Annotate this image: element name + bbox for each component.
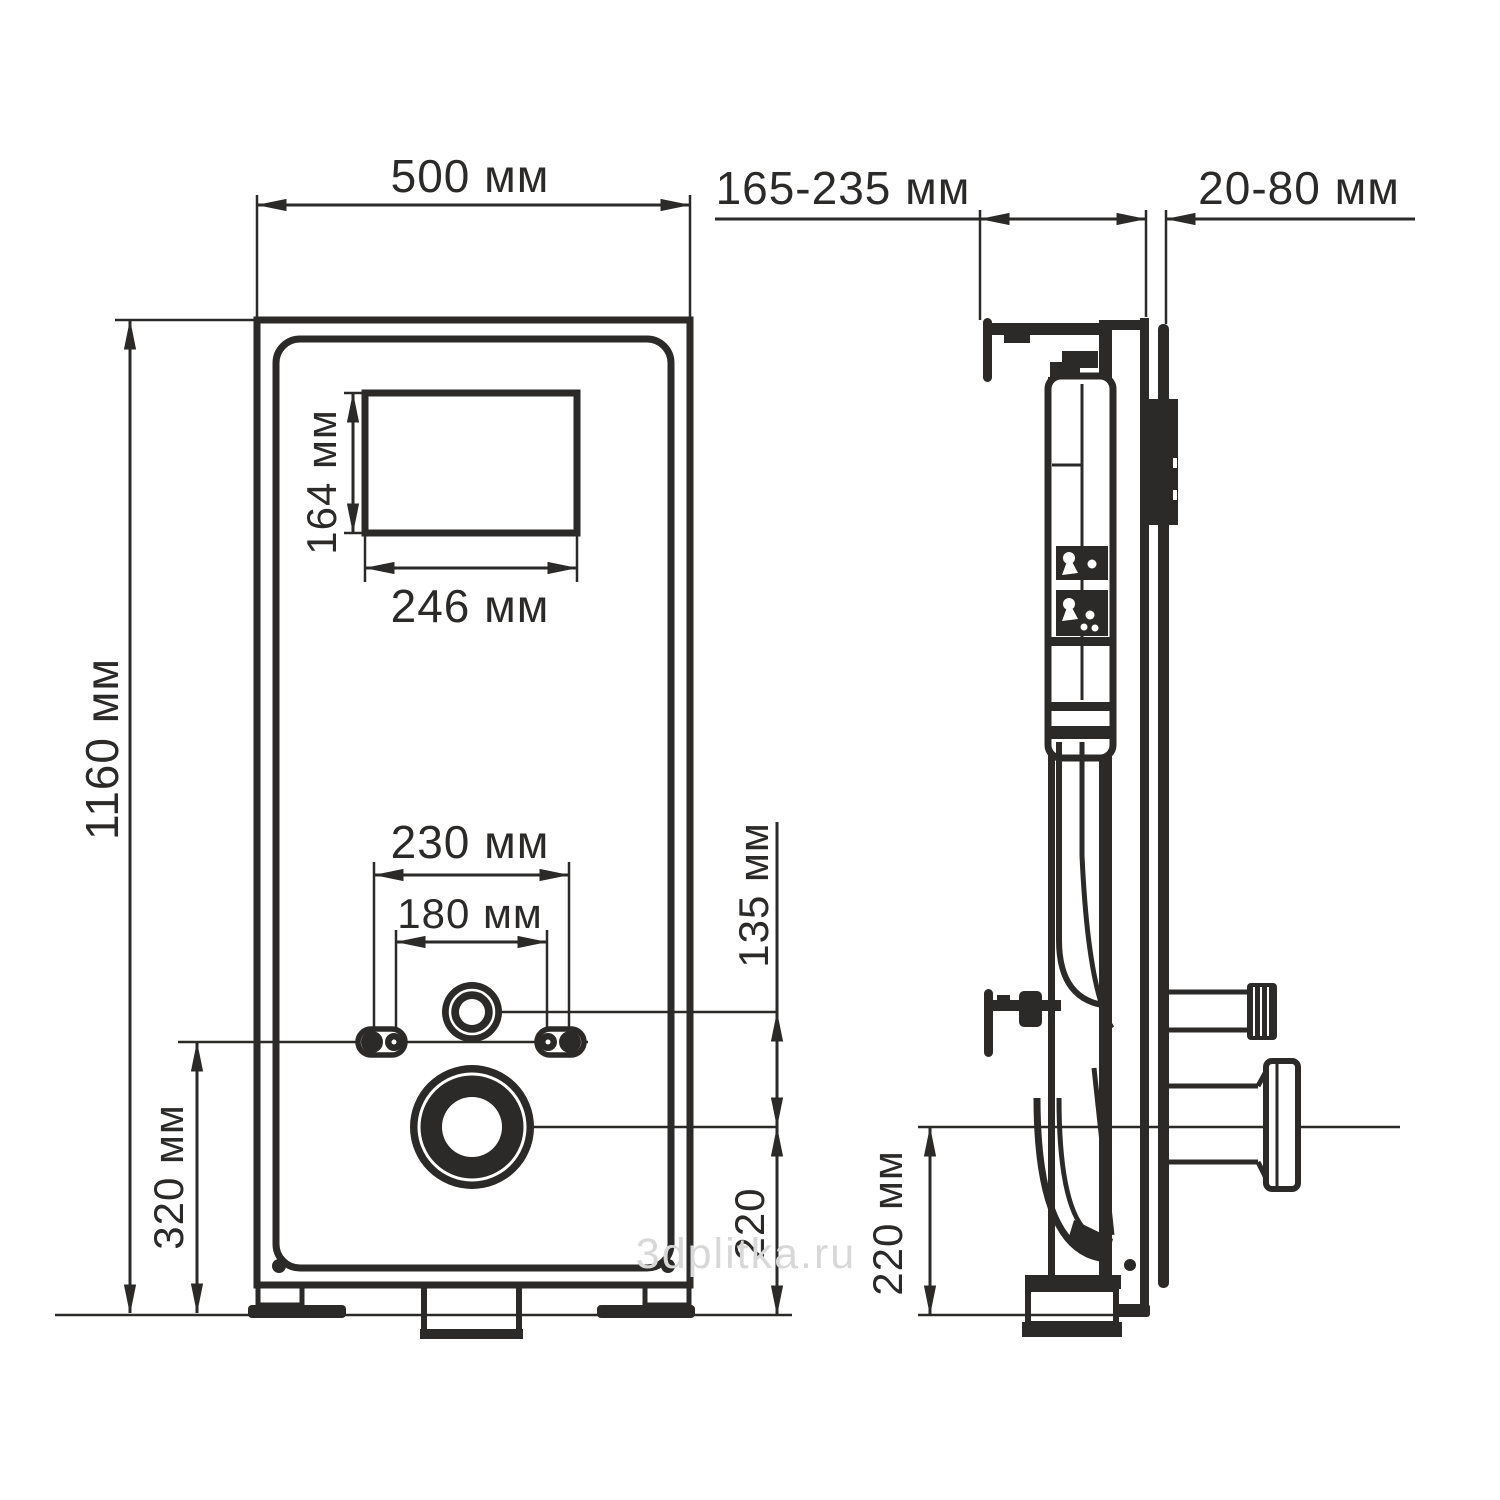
label-window-height: 164 мм (298, 409, 345, 555)
label-inlet-drain: 135 мм (730, 822, 777, 968)
floor-foot-side (1022, 1259, 1136, 1337)
dim-window-height-164 (344, 393, 363, 533)
corner-bolt-left (272, 1259, 286, 1273)
dim-frame-depth-165-235 (715, 210, 1146, 320)
installation-frame-drawing: 500 мм 165-235 мм 20-80 мм 164 мм 246 мм… (0, 0, 1500, 1500)
wall-bracket (983, 318, 1109, 382)
fixing-slot-left (358, 1029, 405, 1055)
drain-outlet-bell (1169, 1061, 1298, 1189)
keyhole-plate-lower (1056, 590, 1108, 636)
dim-window-width-246 (365, 536, 577, 582)
flush-plate-window (365, 393, 577, 533)
flush-shaft-block (1148, 399, 1178, 525)
frame-rail-front (1140, 318, 1149, 1308)
fixing-slot-right (537, 1029, 584, 1055)
dim-finish-gap-20-80 (1166, 210, 1415, 324)
watermark-text: 3dplitka.ru (636, 1230, 856, 1278)
label-frame-depth: 165-235 мм (716, 162, 971, 214)
keyhole-plate-upper (1056, 546, 1108, 580)
dim-width-500 (257, 195, 690, 317)
dim-fixing-floor-320 (192, 1042, 203, 1313)
label-window-width: 246 мм (391, 580, 550, 632)
flush-outlet-stud (1169, 983, 1277, 1040)
dim-drain-floor-side-220 (925, 1127, 936, 1315)
label-fixing-outer: 230 мм (391, 816, 550, 868)
label-height-1160: 1160 мм (76, 658, 128, 840)
frame-rail-foot (1116, 1304, 1150, 1317)
outlet-box (424, 1285, 519, 1334)
water-inlet-port (442, 982, 502, 1042)
label-fixing-floor: 320 мм (145, 1104, 192, 1250)
label-finish-gap: 20-80 мм (1198, 162, 1400, 214)
outlet-box-base (420, 1329, 523, 1339)
drain-port (410, 1065, 534, 1189)
label-width-500: 500 мм (391, 150, 550, 202)
technical-drawing-page: 500 мм 165-235 мм 20-80 мм 164 мм 246 мм… (0, 0, 1500, 1500)
label-drain-floor-side: 220 мм (864, 1150, 911, 1296)
side-view (918, 318, 1400, 1337)
label-fixing-inner: 180 мм (397, 890, 543, 937)
